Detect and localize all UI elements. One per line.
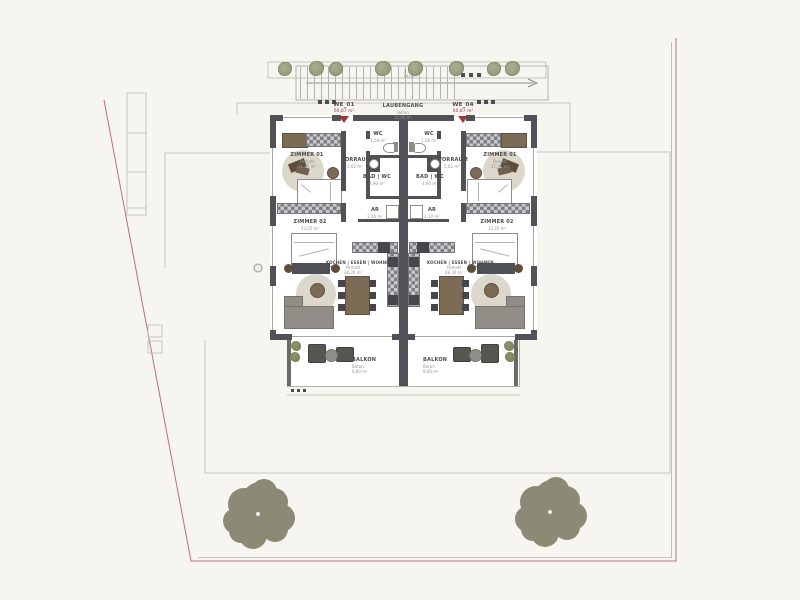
balcony-plant xyxy=(504,341,514,351)
sofa xyxy=(475,306,525,329)
chair xyxy=(338,292,345,299)
interior-wall xyxy=(408,155,441,158)
tree xyxy=(236,492,280,536)
interior-wall xyxy=(358,219,399,222)
sink xyxy=(409,295,419,305)
room-label-ar-we01: AR 2,10 m² xyxy=(364,207,386,219)
party-wall xyxy=(399,115,408,340)
stairs-note: 4 Stg 16|30 xyxy=(398,69,420,79)
kitchen-counter xyxy=(352,242,398,253)
room-label-wc-we04: WC 1,58 m² xyxy=(419,131,439,143)
room-label-balkon-we04: BALKON Beton 9,60 m² xyxy=(423,357,455,374)
toilet-bowl xyxy=(414,143,426,153)
chair xyxy=(462,292,469,299)
balcony-table xyxy=(325,349,338,362)
entrance-marker-icon xyxy=(458,116,468,123)
chair xyxy=(462,280,469,287)
chair xyxy=(338,280,345,287)
wardrobe xyxy=(282,133,308,148)
chair xyxy=(338,304,345,311)
balcony-hatch-dot xyxy=(303,389,306,392)
blanket-fold xyxy=(299,248,328,256)
room-label-vorraum-we04: VORRAUM 5,62 m² xyxy=(438,157,466,169)
downpipe-column xyxy=(254,264,262,272)
coffee-table xyxy=(484,283,499,298)
unit-area: 60,87 m² xyxy=(441,109,485,115)
fridge xyxy=(378,242,390,253)
kitchen-counter xyxy=(409,242,455,253)
interior-wall xyxy=(408,196,441,199)
room-label-bad-we01: BAD | WC 4,90 m² xyxy=(362,174,392,186)
terrace-glazing xyxy=(415,334,515,340)
unit-label-we04: WE_04 60,87 m² xyxy=(441,102,485,123)
corridor-wardrobe xyxy=(277,203,341,214)
balcony-hatch-dot xyxy=(297,389,300,392)
room-label-bad-we04: BAD | WC 4,90 m² xyxy=(415,174,445,186)
blanket-fold xyxy=(301,184,311,192)
room-label-zimmer02-we01: ZIMMER 02 13,25 m² xyxy=(286,219,334,231)
roofline-dot xyxy=(491,100,495,104)
tree xyxy=(528,490,572,534)
toilet-bowl xyxy=(383,143,395,153)
wardrobe xyxy=(501,133,527,148)
room-label-zimmer01-we04: ZIMMER 01 Parkett 11,95 m² xyxy=(476,152,524,169)
room-label-wc-we01: WC 1,58 m² xyxy=(368,131,388,143)
balcony-plant xyxy=(505,352,515,362)
chair xyxy=(369,292,376,299)
balcony-divider-wall xyxy=(399,340,408,386)
coffee-table xyxy=(310,283,325,298)
balcony-plant xyxy=(290,352,300,362)
single-bed xyxy=(297,179,342,206)
chair xyxy=(369,280,376,287)
terrace-glazing xyxy=(292,334,392,340)
room-label-zimmer02-we04: ZIMMER 02 13,25 m² xyxy=(473,219,521,231)
window xyxy=(531,286,537,330)
room-label-vorraum-we01: VORRAUM 5,62 m² xyxy=(341,157,369,169)
interior-wall xyxy=(366,196,399,199)
lounge-chair xyxy=(308,344,326,363)
balcony-side-wall xyxy=(514,340,518,386)
dining-table xyxy=(345,276,370,315)
interior-wall xyxy=(366,155,399,158)
balcony-table xyxy=(469,349,482,362)
interior-wall xyxy=(408,219,449,222)
blanket-fold xyxy=(498,184,508,192)
room-label-balkon-we01: BALKON Beton 9,60 m² xyxy=(352,357,384,374)
room-label-ar-we04: AR 2,10 m² xyxy=(421,207,443,219)
unit-label-we01: WE_01 60,87 m² xyxy=(322,102,366,123)
chair xyxy=(369,304,376,311)
room-label-wohnen-we04: KOCHEN | ESSEN | WOHNEN Parkett 28,30 m² xyxy=(427,260,481,276)
sink xyxy=(388,295,398,305)
fridge xyxy=(417,242,429,253)
unit-area: 60,87 m² xyxy=(322,109,366,115)
corridor-wardrobe xyxy=(466,203,530,214)
window xyxy=(531,148,537,196)
window xyxy=(270,286,276,330)
dining-table xyxy=(439,276,464,315)
room-label-laubengang: LAUBENGANG Beton 12,40 m² xyxy=(378,103,428,120)
stove xyxy=(409,257,419,267)
entrance-marker-icon xyxy=(339,116,349,123)
chair xyxy=(431,280,438,287)
window xyxy=(270,226,276,266)
single-bed xyxy=(467,179,512,206)
stair-landing-dot xyxy=(469,73,473,77)
balcony-hatch-dot xyxy=(291,389,294,392)
stair-landing-dot xyxy=(477,73,481,77)
chair xyxy=(462,304,469,311)
built-in-closet xyxy=(466,133,501,147)
bed-bench xyxy=(292,263,330,274)
potted-plant xyxy=(284,264,293,273)
window xyxy=(531,226,537,266)
blanket-fold xyxy=(480,248,509,256)
window xyxy=(270,148,276,196)
lounge-chair xyxy=(481,344,499,363)
sofa xyxy=(284,306,334,329)
site-plan: WE_01 60,87 m² WE_04 60,87 m² LAUBENGANG… xyxy=(0,0,800,600)
chair xyxy=(431,292,438,299)
built-in-closet xyxy=(306,133,341,147)
chair xyxy=(431,304,438,311)
room-label-wohnen-we01: KOCHEN | ESSEN | WOHNEN Parkett 28,30 m² xyxy=(326,260,380,276)
balcony-plant xyxy=(291,341,301,351)
pillow xyxy=(294,236,334,243)
pillow xyxy=(470,182,479,201)
interior-wall xyxy=(341,203,346,222)
interior-wall xyxy=(461,203,466,222)
pillow xyxy=(330,182,339,201)
pillow xyxy=(475,236,515,243)
room-label-zimmer01-we01: ZIMMER 01 Parkett 11,95 m² xyxy=(283,152,331,169)
potted-plant xyxy=(514,264,523,273)
washing-machine xyxy=(386,205,399,219)
